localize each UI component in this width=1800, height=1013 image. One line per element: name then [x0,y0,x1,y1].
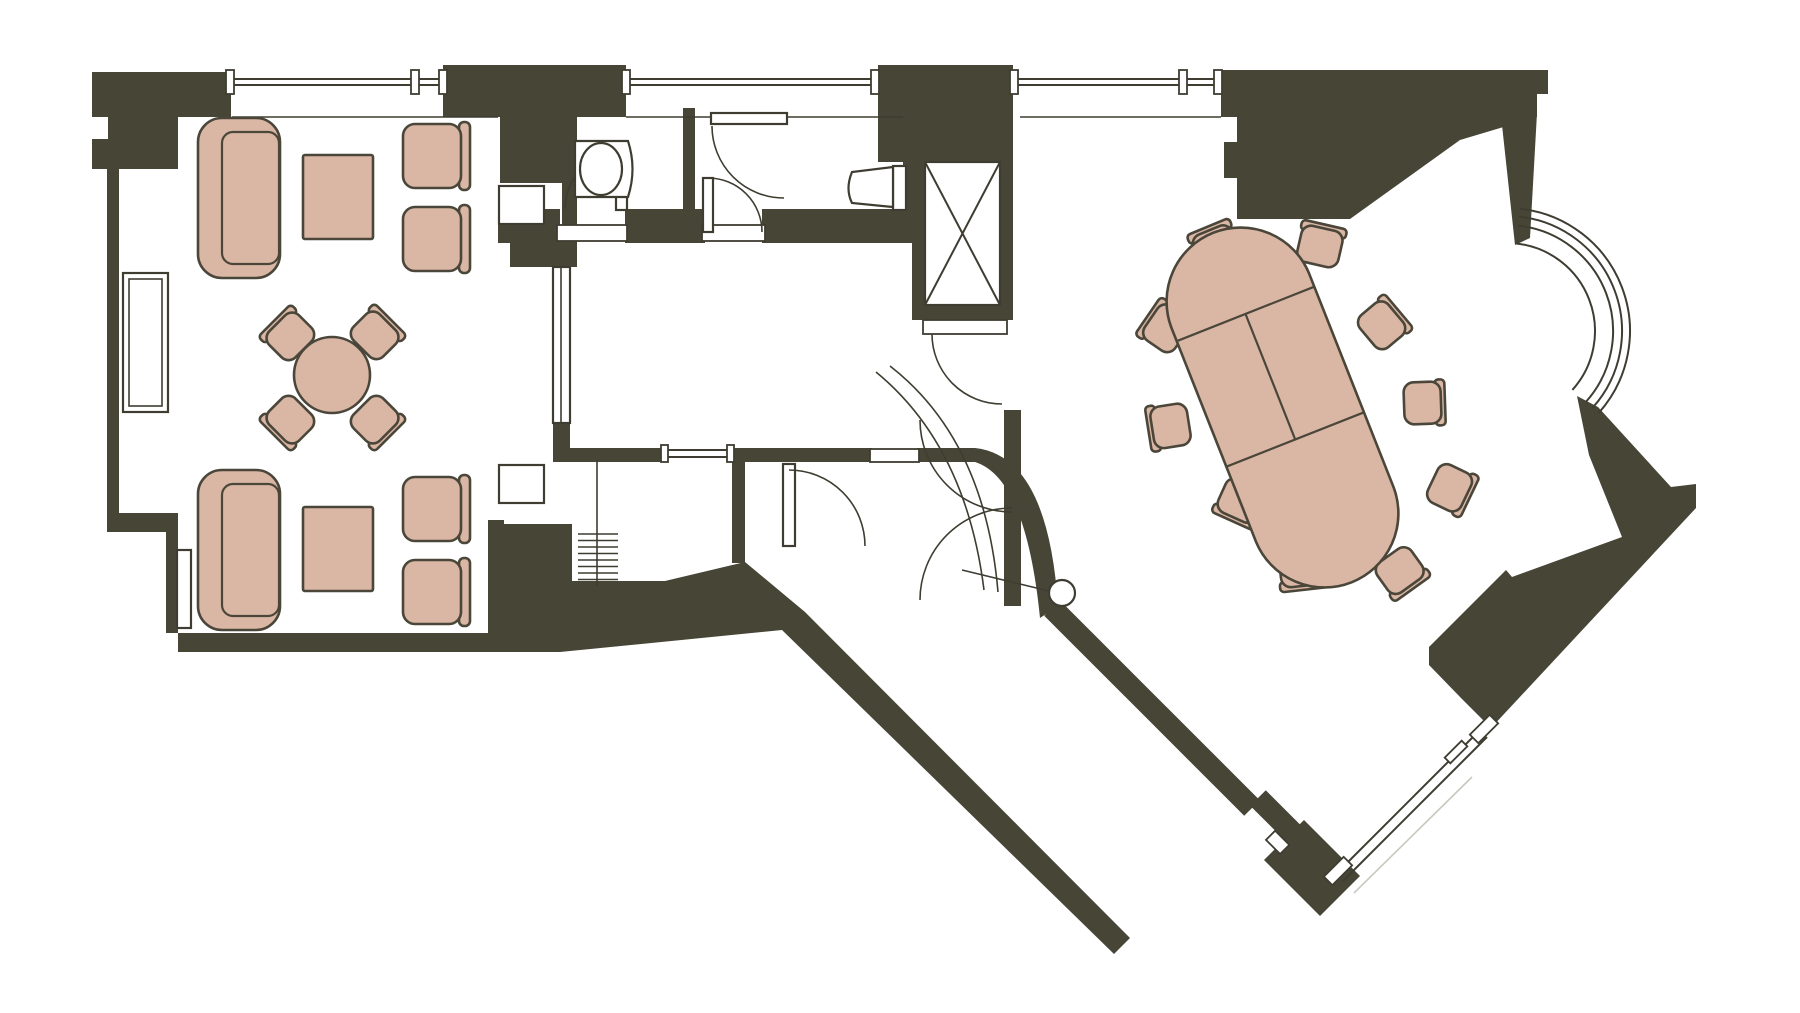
wall-lounge-left [107,169,119,513]
conference-chair [1145,400,1193,452]
washbasin-icon [580,143,622,195]
window-lounge-lower [177,550,191,628]
side-table [499,186,544,224]
window-se-sill [1354,777,1472,893]
door-leaf-vestibule [783,464,795,546]
window-mullion [1214,70,1222,94]
wall-top-center-block [443,65,626,117]
wall-corridor-top-b [625,209,705,243]
window-mullion [871,70,879,94]
wall-meeting-north-mass [1221,70,1548,219]
toilet-icon [849,167,894,207]
wall-diagonal-right [1052,608,1252,808]
wall-pier-topleft-base [92,139,178,169]
door-swing-vestibule [789,470,865,546]
wall-corridor-bottom-a [570,448,665,462]
meeting-room-furniture [1135,218,1480,602]
conference-chair [1403,379,1446,426]
window-mullion [622,70,630,94]
wall-corridor-bottom-b [730,448,872,462]
wall-partition-lower [553,423,570,462]
staircase [578,460,618,586]
wall-pier-topleft [92,72,231,117]
door-threshold-bathroom [557,225,627,241]
door-swing-elevator-side [932,334,1002,404]
window-mullion [226,70,234,94]
wall-southeast-mass [1429,396,1696,728]
window-mullion [1179,70,1187,94]
round-table [294,337,370,413]
toilet-tank [893,166,906,210]
floor-plan-page [0,0,1800,1013]
door-threshold-elevator-side [923,320,1007,334]
conference-chair [1423,459,1480,518]
coffee-table [303,507,373,591]
window-mullion [439,70,447,94]
door-swing-wc [708,178,762,232]
wall-lounge-left-step [107,513,178,532]
window-mullion [1010,70,1018,94]
bay-window-arc-2 [1518,226,1613,402]
door-swing-wc-upper [712,126,784,198]
armchair [403,475,470,543]
side-table [499,465,544,503]
wall-elevator-head [878,65,1013,162]
column-round [1049,580,1075,606]
wall-stairs-right [732,450,745,563]
sofa [198,470,280,630]
window-mullion [727,445,734,462]
window-mullion [661,445,668,462]
bay-window-arc-1 [1516,244,1595,390]
window-mullion [411,70,419,94]
armchair [403,122,470,190]
sofa [198,118,280,278]
door-threshold-vestibule [870,449,919,462]
window-se-inner [1343,737,1487,881]
floor-plan-drawing [0,0,1800,1013]
door-leaf-wc [703,178,713,232]
coffee-table [303,155,373,239]
door-leaf-wc-upper [711,113,787,124]
conference-chair [1353,293,1414,355]
armchair [403,558,470,626]
wall-corridor-top-c [762,209,915,243]
wall-pier-topleft-step [108,117,178,139]
armchair [403,205,470,273]
